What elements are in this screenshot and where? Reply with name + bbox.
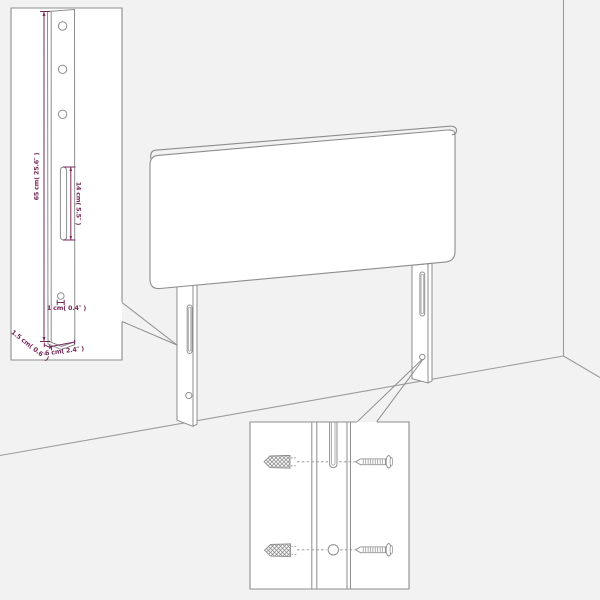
dimension-label-slot: 14 cm( 5.5″ )	[75, 182, 83, 226]
inset-leg-dimensions: 65 cm( 25.6″ ) 14 cm( 5.5″ ) 1 cm( 0.4″ …	[10, 8, 122, 363]
leg-hole-lower	[58, 110, 66, 118]
leg-hole-middle	[58, 65, 66, 73]
headboard-front-face	[150, 130, 455, 289]
left-leg-slot-inner	[188, 307, 190, 351]
diagram-page: 65 cm( 25.6″ ) 14 cm( 5.5″ ) 1 cm( 0.4″ …	[0, 0, 600, 600]
leg-small-hole	[58, 293, 65, 300]
headboard-right-leg	[412, 263, 432, 383]
right-leg-slot-inner	[421, 274, 423, 314]
leg-hole-top	[58, 22, 66, 30]
left-leg-hole	[186, 392, 192, 398]
leg-slot-side-view	[60, 167, 66, 240]
dimension-label-height: 65 cm( 25.6″ )	[33, 152, 41, 200]
diagram-canvas: 65 cm( 25.6″ ) 14 cm( 5.5″ ) 1 cm( 0.4″ …	[0, 0, 600, 600]
dimension-label-hole: 1 cm( 0.4″ )	[47, 304, 86, 312]
inset-mounting-detail	[250, 422, 409, 589]
right-leg-hole	[420, 354, 425, 359]
leg-front-hole	[328, 545, 338, 555]
headboard-left-leg	[177, 285, 197, 427]
